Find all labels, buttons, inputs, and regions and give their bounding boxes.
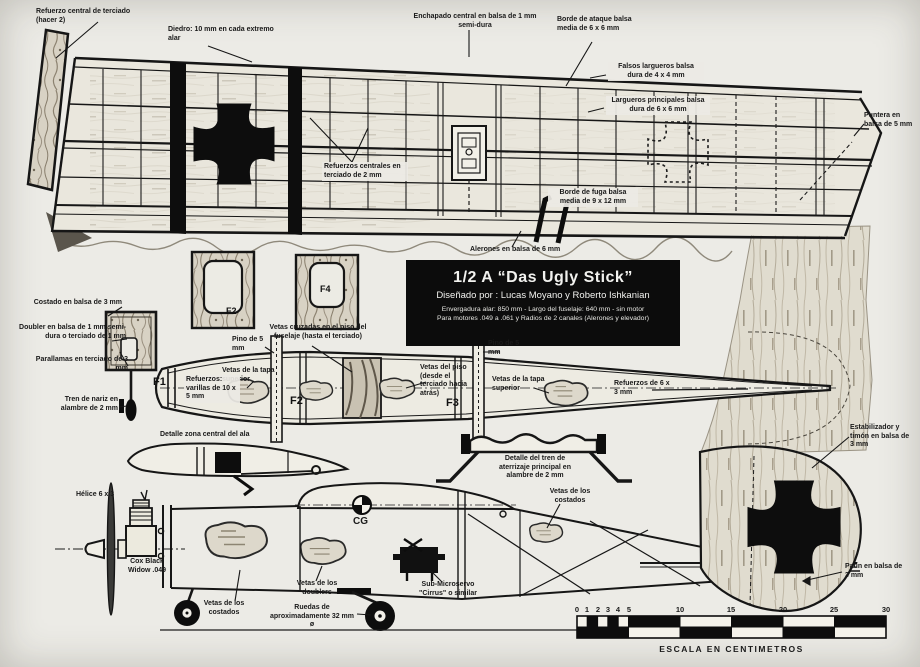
scale-caption: ESCALA EN CENTIMETROS xyxy=(577,644,886,654)
torn-sheet-edge xyxy=(56,237,732,261)
label-cox: Cox Black Widow .049 xyxy=(118,558,176,575)
engine-cox-049 xyxy=(118,490,164,559)
scale-tick-15: 15 xyxy=(727,605,735,614)
label-doubler: Doubler en balsa de 1 mm semi-dura o ter… xyxy=(6,324,126,341)
plan-title: 1/2 A “Das Ugly Stick” xyxy=(408,269,678,287)
spinner xyxy=(86,540,105,558)
label-helice: Hélice 6 x 3 xyxy=(76,491,116,500)
former-template-f4: F4 xyxy=(320,284,331,294)
scale-tick-10: 10 xyxy=(676,605,684,614)
label-puntera: Puntera en balsa de 5 mm xyxy=(864,112,916,129)
label-pino-der: Pino de 5 mm xyxy=(488,340,522,357)
scale-tick-3: 3 xyxy=(606,605,610,614)
former-templates xyxy=(192,252,358,329)
label-detalle-ala: Detalle zona central del ala xyxy=(160,431,340,440)
title-box: 1/2 A “Das Ugly Stick” Diseñado por : Lu… xyxy=(408,262,678,344)
former-f3: F3 xyxy=(446,397,459,409)
label-alerones: Alerones en balsa de 6 mm xyxy=(470,246,580,255)
scale-tick-1: 1 xyxy=(585,605,589,614)
label-tren-nariz: Tren de nariz en alambre de 2 mm xyxy=(40,396,118,413)
label-vetas-cruzadas: Vetas cruzadas en el piso del fuselaje (… xyxy=(262,324,374,341)
label-vetas-doublers: Vetas de los doublers xyxy=(288,580,346,597)
label-pino-izq: Pino de 5 mm xyxy=(232,336,266,353)
label-vetas-piso: Vetas del piso (desde el terciado hacia … xyxy=(420,364,478,398)
label-vetas-tapa-2: Vetas de la tapa superior xyxy=(492,376,548,393)
scale-tick-5: 5 xyxy=(627,605,631,614)
plan-designers: Diseñado por : Lucas Moyano y Roberto Is… xyxy=(408,290,678,301)
plan-specs-2: Para motores .049 a .061 y Radios de 2 c… xyxy=(408,315,678,322)
cross-grain-patch xyxy=(343,358,381,418)
label-costado: Costado en balsa de 3 mm xyxy=(30,299,122,308)
label-vetas-costados-cola: Vetas de los costados xyxy=(540,488,600,505)
label-vetas-costados-nariz: Vetas de los costados xyxy=(196,600,252,617)
former-f1: F1 xyxy=(153,376,166,388)
label-diedro: Diedro: 10 mm en cada extremo alar xyxy=(168,26,288,43)
label-sub-microservo: Sub-Microservo "Cirrus" o similar xyxy=(408,581,488,598)
label-borde-fuga: Borde de fuga balsa media de 9 x 12 mm xyxy=(548,188,638,207)
label-refuerzos-6x3: Refuerzos de 6 x 3 mm xyxy=(614,380,674,397)
label-estabilizador: Estabilizador y timón en balsa de 3 mm xyxy=(850,424,912,450)
label-refuerzos-varillas: Refuerzos: varillas de 10 x 5 mm xyxy=(184,375,240,403)
plan-specs-1: Envergadura alar: 850 mm - Largo del fus… xyxy=(408,306,678,313)
former-template-f2: F2 xyxy=(226,306,237,316)
scale-tick-0: 0 xyxy=(575,605,579,614)
scale-tick-25: 25 xyxy=(830,605,838,614)
label-enchapado: Enchapado central en balsa de 1 mm semi-… xyxy=(410,13,540,30)
label-parallamas: Parallamas en terciado de 3 mm xyxy=(28,356,128,373)
airfoil-detail xyxy=(128,443,347,495)
label-patin: Patín en balsa de 3 mm xyxy=(845,563,905,580)
label-largueros-principales: Largueros principales balsa dura de 6 x … xyxy=(606,96,710,115)
scale-tick-2: 2 xyxy=(596,605,600,614)
former-f2: F2 xyxy=(290,395,303,407)
scale-tick-30: 30 xyxy=(882,605,890,614)
label-refuerzo-central: Refuerzo central de terciado (hacer 2) xyxy=(36,8,148,25)
scale-tick-20: 20 xyxy=(779,605,787,614)
scale-bar xyxy=(577,616,886,638)
label-borde-ataque: Borde de ataque balsa media de 6 x 6 mm xyxy=(557,16,647,33)
label-ruedas: Ruedas de aproximadamente 32 mm ø xyxy=(268,604,356,630)
label-detalle-tren: Detalle del tren de aterrizaje principal… xyxy=(492,455,578,481)
fin-rudder xyxy=(700,446,861,611)
label-refuerzos-centrales: Refuerzos centrales en terciado de 2 mm xyxy=(322,162,408,181)
wing-plan-view xyxy=(52,58,881,243)
label-falsos-largueros: Falsos largueros balsa dura de 4 x 4 mm xyxy=(608,62,704,81)
cg-label: CG xyxy=(353,516,368,527)
balsa-sheet-tail-area xyxy=(700,226,872,455)
propeller xyxy=(107,483,114,615)
cg-symbol xyxy=(353,496,371,514)
scale-tick-4: 4 xyxy=(616,605,620,614)
servo-side-view xyxy=(393,539,445,581)
model-plan-sheet: 1/2 A “Das Ugly Stick” Diseñado por : Lu… xyxy=(0,0,920,667)
